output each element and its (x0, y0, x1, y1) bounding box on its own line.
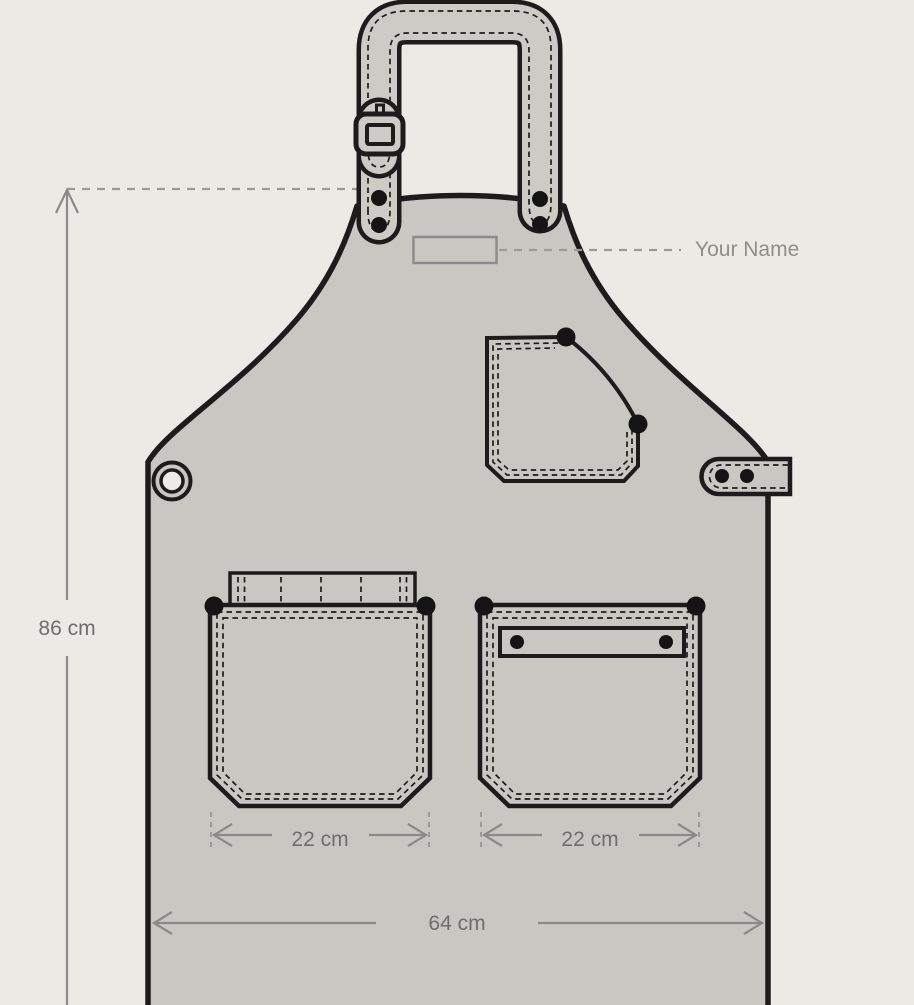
rivet (475, 597, 494, 616)
right-pocket-width-label: 22 cm (561, 828, 618, 851)
grommet-hole (161, 470, 183, 492)
grommet (154, 463, 191, 500)
rivet (371, 217, 387, 233)
left-pocket-outline (210, 605, 430, 806)
height-dimension-label: 86 cm (38, 617, 95, 640)
rivet (687, 597, 706, 616)
rivet (532, 216, 548, 232)
rivet (510, 635, 524, 649)
left-pocket (205, 573, 436, 806)
left-pocket-width-label: 22 cm (291, 828, 348, 851)
apron-diagram: 86 cm (0, 0, 914, 1005)
buckle (356, 105, 403, 154)
rivet (371, 190, 387, 206)
rivet (740, 469, 754, 483)
rivet (629, 415, 648, 434)
hem-width-label: 64 cm (428, 912, 485, 935)
right-pocket (475, 597, 706, 807)
right-pocket-band (500, 628, 684, 656)
rivet (715, 469, 729, 483)
rivet (532, 191, 548, 207)
your-name-label: Your Name (695, 238, 799, 261)
pen-slot-strip (230, 573, 415, 606)
apron-spec-page: 86 cm (0, 0, 914, 1005)
rivet (659, 635, 673, 649)
side-strap-tab (702, 459, 790, 494)
buckle-frame-outer (356, 114, 403, 154)
rivet (417, 597, 436, 616)
rivet (205, 597, 224, 616)
rivet (557, 328, 576, 347)
